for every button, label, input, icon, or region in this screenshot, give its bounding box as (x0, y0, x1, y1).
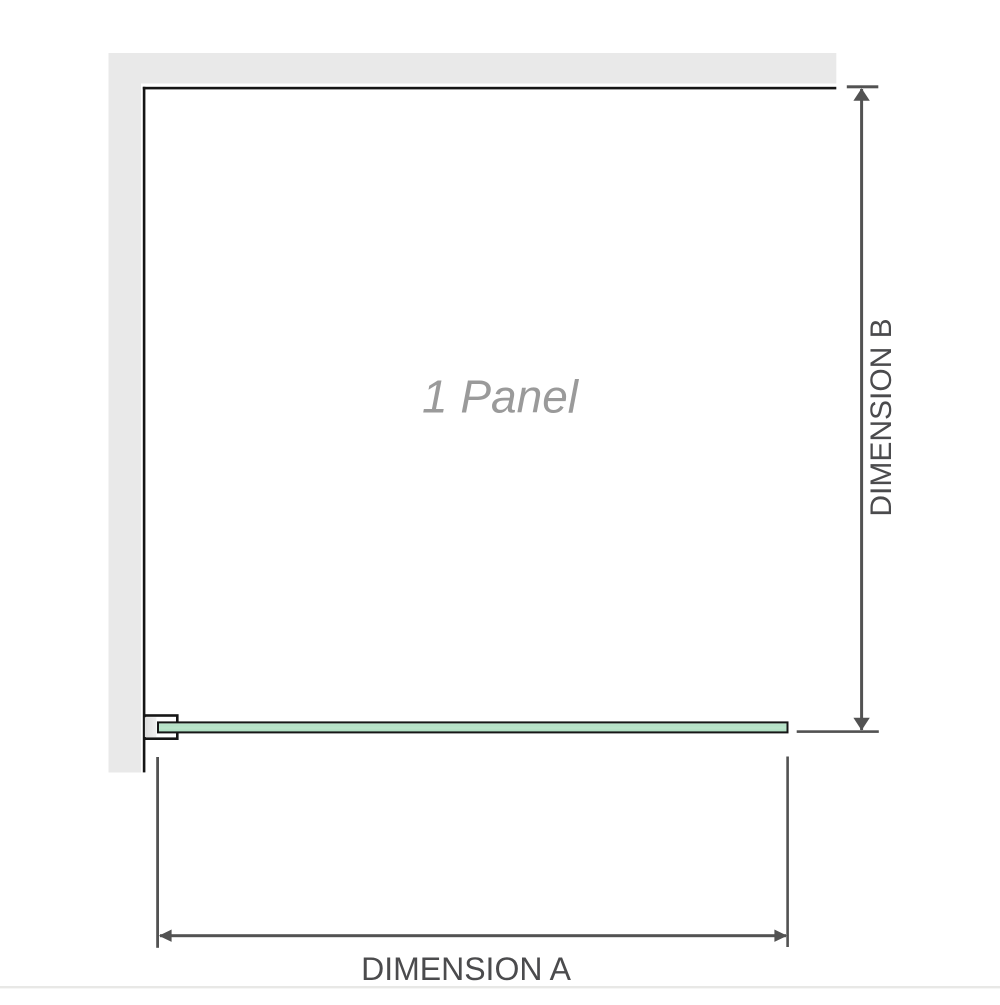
svg-text:1 Panel: 1 Panel (422, 371, 580, 423)
svg-text:DIMENSION A: DIMENSION A (361, 951, 571, 987)
svg-text:DIMENSION B: DIMENSION B (865, 318, 898, 516)
